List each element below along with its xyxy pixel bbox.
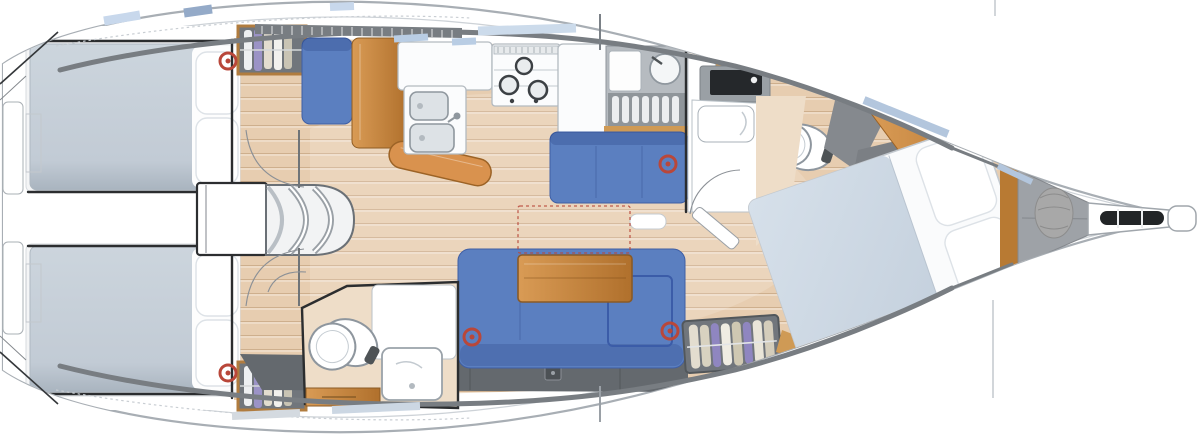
deck-hatch (184, 9, 212, 13)
drain (419, 135, 425, 141)
transom-locker (3, 242, 23, 334)
fridge-drainer-unit (604, 46, 690, 135)
burner (529, 81, 547, 99)
sprit-tip (1168, 206, 1196, 231)
dinette-backrest (550, 132, 688, 145)
saloon-wardrobe (682, 315, 781, 374)
drainer-slats (612, 96, 679, 123)
owners-cabin (746, 96, 1100, 373)
knob (534, 99, 538, 103)
double-berth-mattress (30, 246, 206, 392)
counter (558, 44, 610, 136)
heads-sink (382, 348, 442, 400)
burner (500, 76, 518, 94)
rode-bag (1035, 188, 1073, 238)
double-berth-mattress (30, 44, 206, 190)
hinge-dot (551, 371, 555, 375)
coachroof-window (452, 41, 476, 42)
floorplan-canvas (0, 0, 1200, 436)
fridge-lid (609, 51, 641, 91)
sink-unit (404, 86, 466, 154)
knob (510, 99, 514, 103)
coachroof-window (478, 28, 576, 31)
faucet (751, 77, 757, 83)
anchor-roller (1100, 211, 1164, 225)
yacht-floorplan (0, 0, 1200, 436)
nav-seat-back (302, 38, 352, 51)
pouf-body (1035, 188, 1073, 238)
coachroof-window (394, 37, 428, 39)
companionway (197, 183, 354, 255)
deck-hatch (332, 406, 420, 410)
sink-basin (410, 124, 454, 152)
sink-basin (410, 92, 448, 120)
drain (417, 103, 423, 109)
burner (516, 58, 532, 74)
deck-hatch (104, 15, 140, 21)
transom-locker (3, 102, 23, 194)
stove (492, 44, 560, 106)
deck-hatch (330, 6, 354, 7)
engine-box (197, 183, 267, 255)
drain (409, 383, 415, 389)
companionway-steps (266, 185, 354, 255)
settee-backrest (460, 344, 683, 366)
deck-hatch (232, 413, 300, 416)
step-pad (630, 214, 666, 229)
bow-fitting (1088, 203, 1196, 235)
counter (398, 42, 492, 90)
